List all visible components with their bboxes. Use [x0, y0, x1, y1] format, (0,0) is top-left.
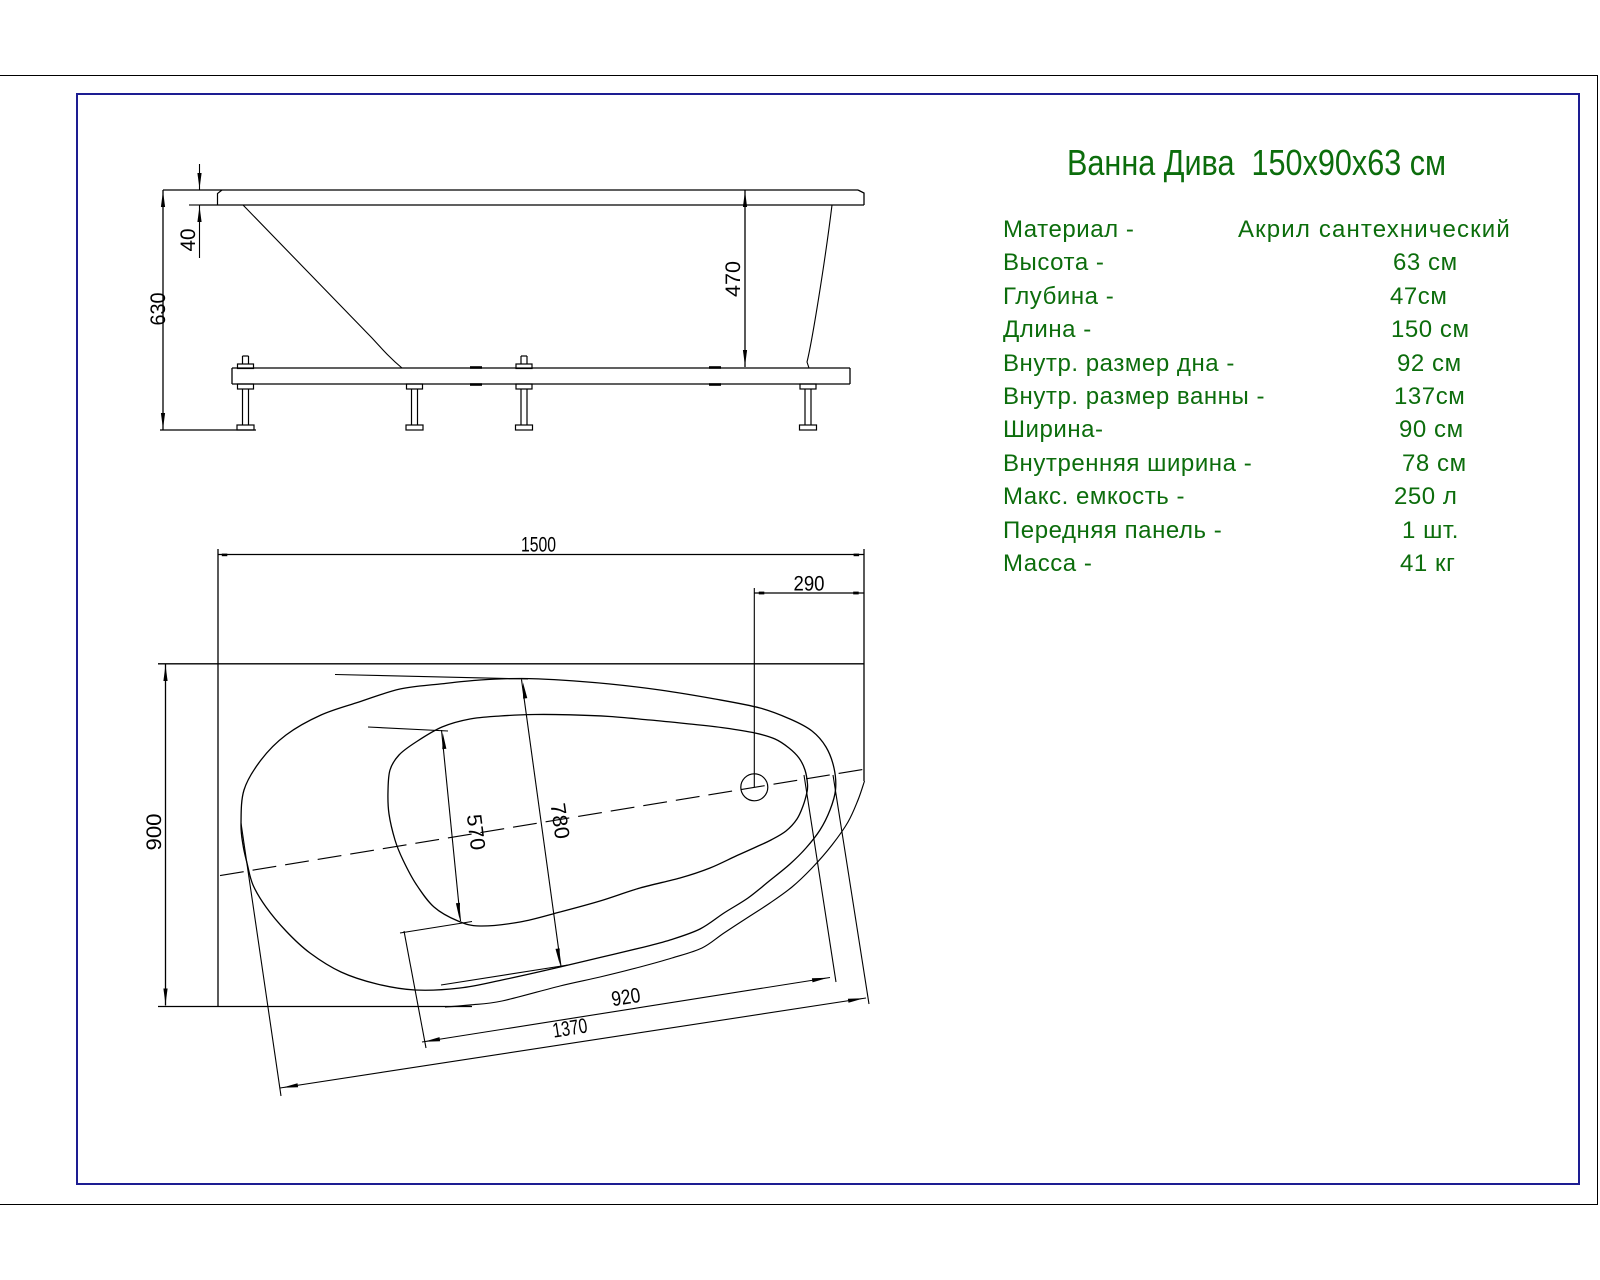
svg-text:920: 920: [610, 984, 642, 1011]
svg-text:1500: 1500: [521, 534, 556, 557]
svg-text:470: 470: [722, 261, 745, 297]
svg-text:570: 570: [462, 813, 489, 852]
svg-text:290: 290: [794, 573, 825, 596]
svg-text:1370: 1370: [551, 1014, 589, 1042]
svg-text:900: 900: [143, 814, 166, 851]
svg-text:780: 780: [546, 802, 574, 841]
svg-text:40: 40: [177, 229, 200, 252]
svg-text:630: 630: [147, 293, 170, 326]
